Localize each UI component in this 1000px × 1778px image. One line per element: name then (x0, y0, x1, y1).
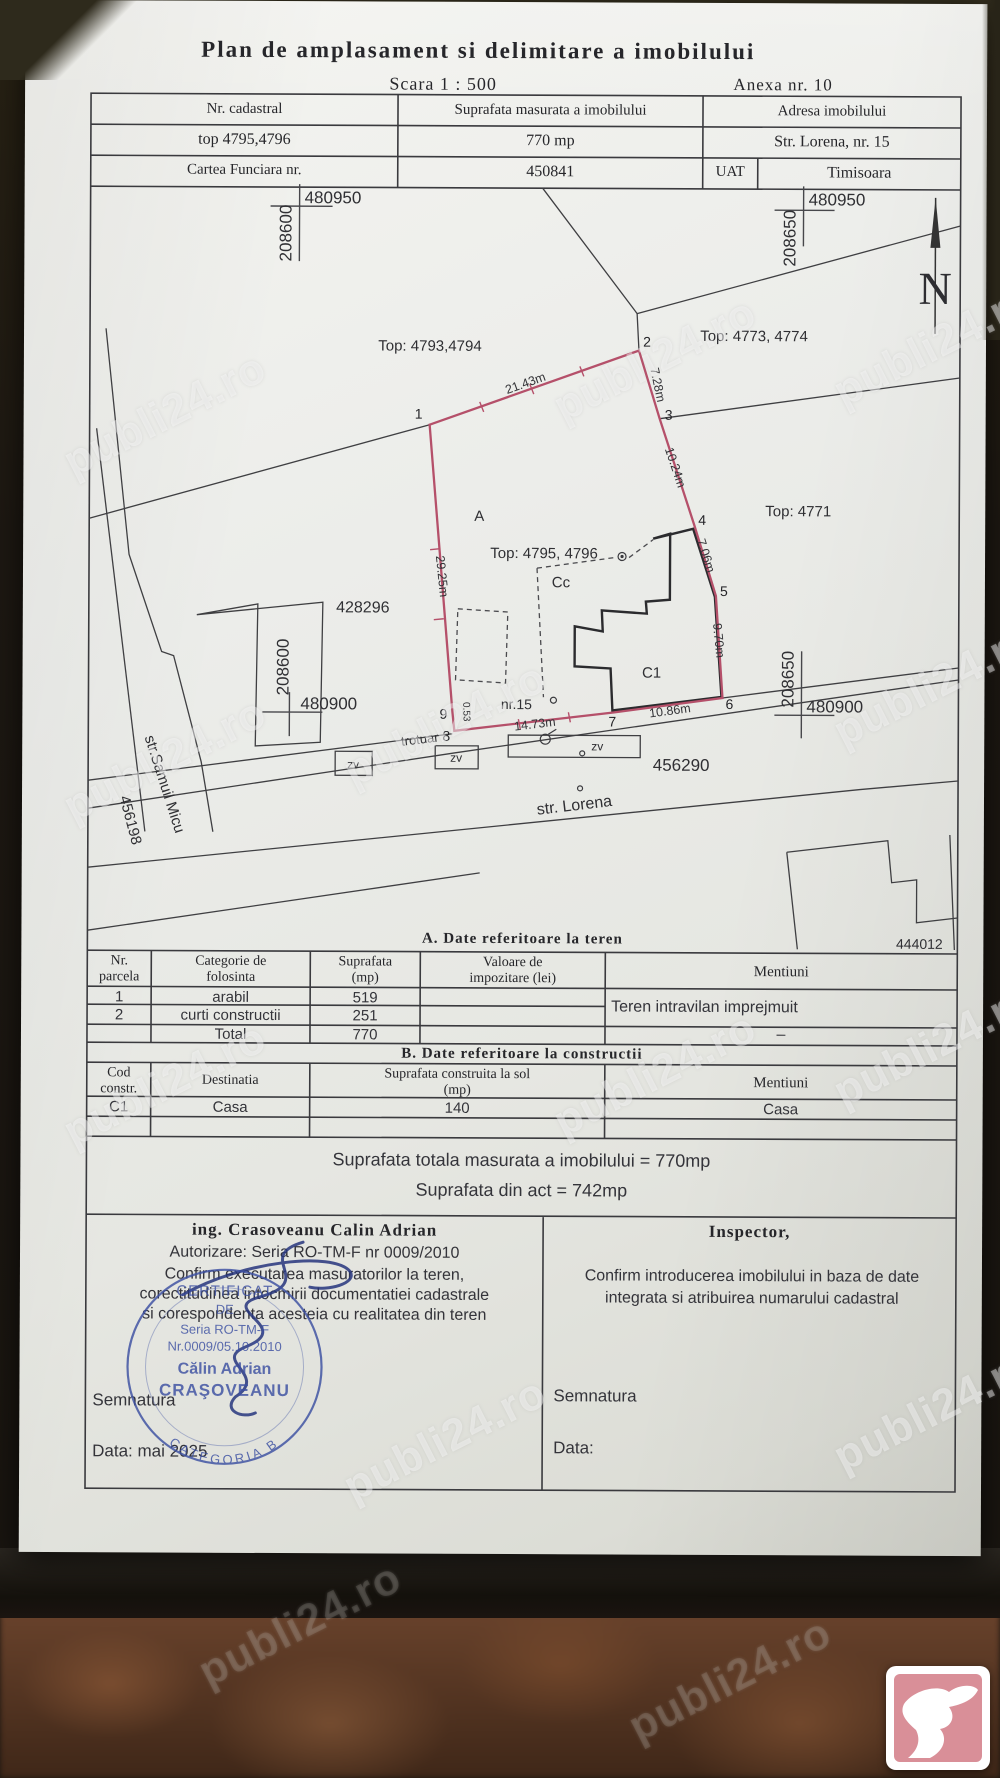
parcel-444012-outline (786, 834, 958, 950)
boundary-line-east-lower (722, 667, 958, 699)
grid-br-northing: 208650 (778, 651, 797, 708)
stamp-cert-line2: DE (216, 1302, 234, 1317)
zv-box-3 (508, 735, 640, 758)
grid-crosses (262, 184, 836, 738)
stamp-seria: Seria RO-TM-F (180, 1322, 269, 1337)
boundary-line-north (542, 188, 640, 350)
building-c1-label: C1 (642, 665, 661, 682)
sidewalk-label: trotuar (400, 729, 440, 748)
house-number-label: nr.15 (501, 696, 532, 712)
boundary-line-east-upper (660, 377, 960, 420)
dim-3-4: 10.24m (662, 445, 689, 489)
stamp-cert-line1: CERTIFICAT (176, 1283, 273, 1300)
dashed-limits (455, 539, 653, 698)
grid-br-easting: 480900 (806, 697, 863, 716)
grid-tr-northing: 208650 (780, 210, 799, 267)
north-arrow-head-icon (930, 198, 940, 248)
boundary-point-numbers: 1 2 3 4 5 6 7 8 9 (413, 333, 735, 745)
publi24-logo-tile (894, 1674, 982, 1762)
zone-cc-label: Cc (552, 574, 571, 591)
photo-edge-dark (982, 0, 1000, 340)
zone-a-label: A (474, 508, 484, 525)
publi24-logo (886, 1666, 990, 1770)
street-samuil-west-edge (95, 428, 147, 831)
dim-5-6: 9.70m (710, 623, 727, 659)
point-2: 2 (643, 334, 651, 350)
north-letter: N (919, 263, 952, 314)
paper-sheet: Plan de amplasament si delimitare a imob… (0, 0, 1000, 1778)
grid-tl-northing: 208600 (276, 205, 295, 262)
stamp-name-first: Călin Adrian (178, 1361, 272, 1378)
subject-parcel-label: Top: 4795, 4796 (490, 545, 598, 562)
parcel-top-right-label: Top: 4773, 4774 (700, 328, 808, 345)
grid-bl-easting: 480900 (300, 694, 357, 713)
point-9: 9 (439, 706, 447, 722)
cc-limit-vertical (536, 568, 544, 697)
parcel-labels: Top: 4793,4794 Top: 4773, 4774 Top: 4771… (115, 325, 946, 952)
grid-bl-northing: 208600 (273, 639, 292, 696)
pole-marker-icon (580, 751, 585, 756)
street-lorena-south-edge (88, 777, 958, 871)
street-lorena-id: 456290 (653, 756, 710, 775)
manhole-arrow (548, 729, 556, 734)
neighbour-boundaries (87, 186, 960, 950)
zv-label-3: zv (591, 739, 603, 753)
point-3: 3 (665, 407, 673, 423)
gate-marker-icon (550, 697, 556, 703)
street-samuil-id: 456198 (116, 794, 145, 847)
dim-7-8: 14.73m (513, 715, 556, 734)
parcel-428296-outline (196, 602, 323, 747)
dim-8-9: 0.53 (460, 702, 472, 722)
point-6: 6 (725, 696, 733, 712)
svg-text:CATEGORIA B: CATEGORIA B (167, 1434, 282, 1467)
stamp-name-last: CRAŞOVEANU (159, 1381, 290, 1401)
point-7: 7 (608, 713, 616, 729)
subject-parcel-boundary (428, 350, 724, 732)
photo-corner-dark (0, 0, 150, 80)
authorization-stamp: CERTIFICAT DE Seria RO-TM-F Nr.0009/05.1… (87, 1223, 388, 1494)
photographed-cadastral-document: Plan de amplasament si delimitare a imob… (0, 0, 1000, 1778)
parcel-right-label: Top: 4771 (765, 503, 831, 520)
point-1: 1 (415, 406, 423, 422)
dim-1-2: 21.43m (503, 370, 547, 397)
dim-4-5: 7.06m (694, 537, 718, 574)
parcel-red-polygon (428, 350, 724, 732)
publi24-bird-icon (894, 1674, 982, 1762)
grid-tl-easting: 480950 (305, 188, 362, 207)
grid-tr-easting: 480950 (809, 190, 866, 209)
grid-labels: 480950 208600 480950 208650 480900 20860… (273, 188, 865, 717)
dim-6-7: 10.86m (648, 701, 691, 720)
street-samuil-label: str.Samuil Micu (141, 733, 188, 835)
north-arrow: N (918, 198, 952, 334)
point-5: 5 (720, 583, 728, 599)
stamp-category-arc: CATEGORIA B (167, 1434, 282, 1467)
parcel-top-left-label: Top: 4793,4794 (378, 337, 482, 354)
zv-label-2: zv (450, 751, 462, 765)
dim-9-1: 29.25m (433, 555, 451, 598)
zv-label-1: zv (347, 757, 359, 771)
shed-outline (456, 609, 508, 683)
stamp-number: Nr.0009/05.10.2010 (167, 1339, 281, 1354)
street-lorena-far-line (87, 871, 479, 932)
site-plan-drawing: N 480950 208600 480950 208650 480900 208… (0, 0, 1000, 1778)
boundary-line-west-of-p1 (89, 423, 429, 519)
parcel-south-east-label: 444012 (896, 936, 943, 952)
parcel-west-label: 428296 (336, 599, 390, 616)
leader-to-building (629, 540, 653, 558)
point-8: 8 (442, 728, 450, 744)
point-4: 4 (698, 512, 706, 528)
pole-marker-2-icon (578, 786, 583, 791)
street-lorena-label: str. Lorena (536, 793, 613, 819)
